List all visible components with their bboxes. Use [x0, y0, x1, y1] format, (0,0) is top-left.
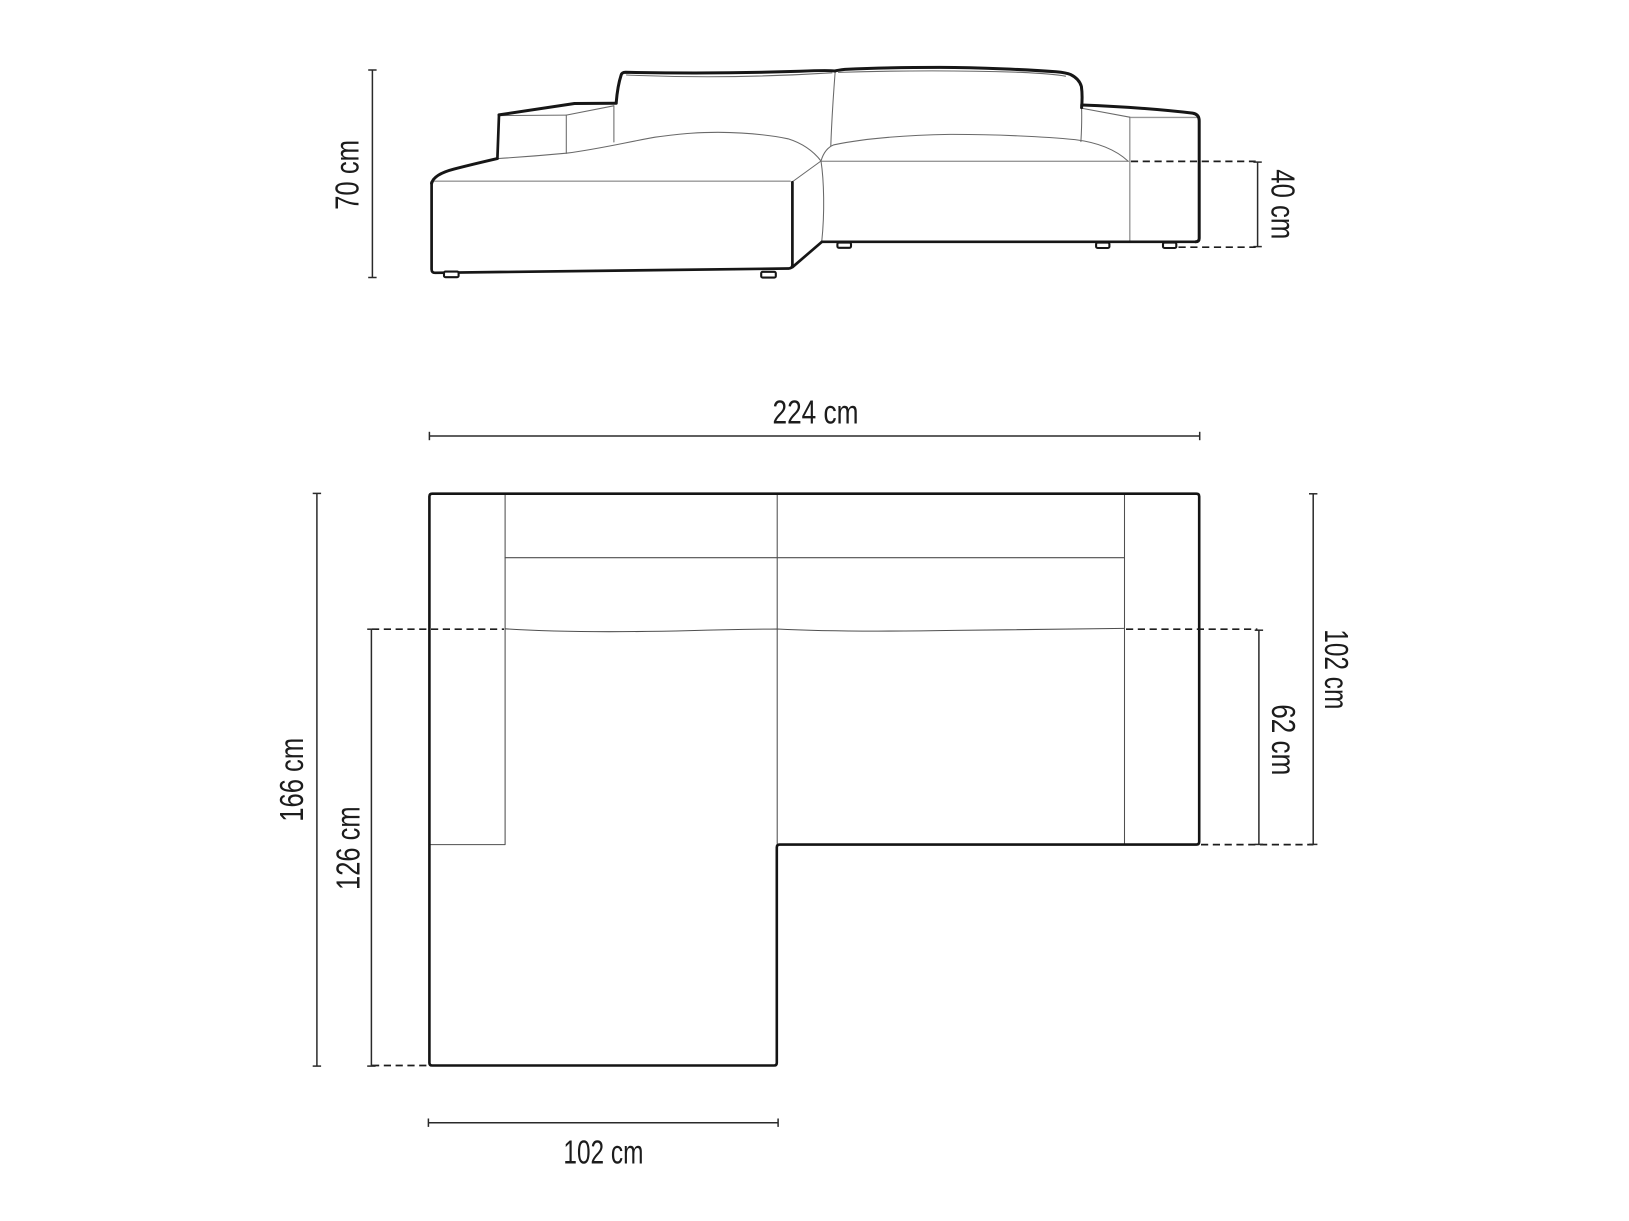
svg-text:70 cm: 70 cm — [328, 140, 365, 210]
svg-text:62 cm: 62 cm — [1265, 704, 1302, 775]
svg-text:126 cm: 126 cm — [329, 806, 366, 890]
svg-text:166 cm: 166 cm — [273, 738, 310, 822]
svg-text:102 cm: 102 cm — [1318, 629, 1355, 709]
svg-text:40 cm: 40 cm — [1265, 169, 1302, 239]
svg-text:224 cm: 224 cm — [773, 394, 859, 431]
svg-text:102 cm: 102 cm — [563, 1133, 643, 1170]
